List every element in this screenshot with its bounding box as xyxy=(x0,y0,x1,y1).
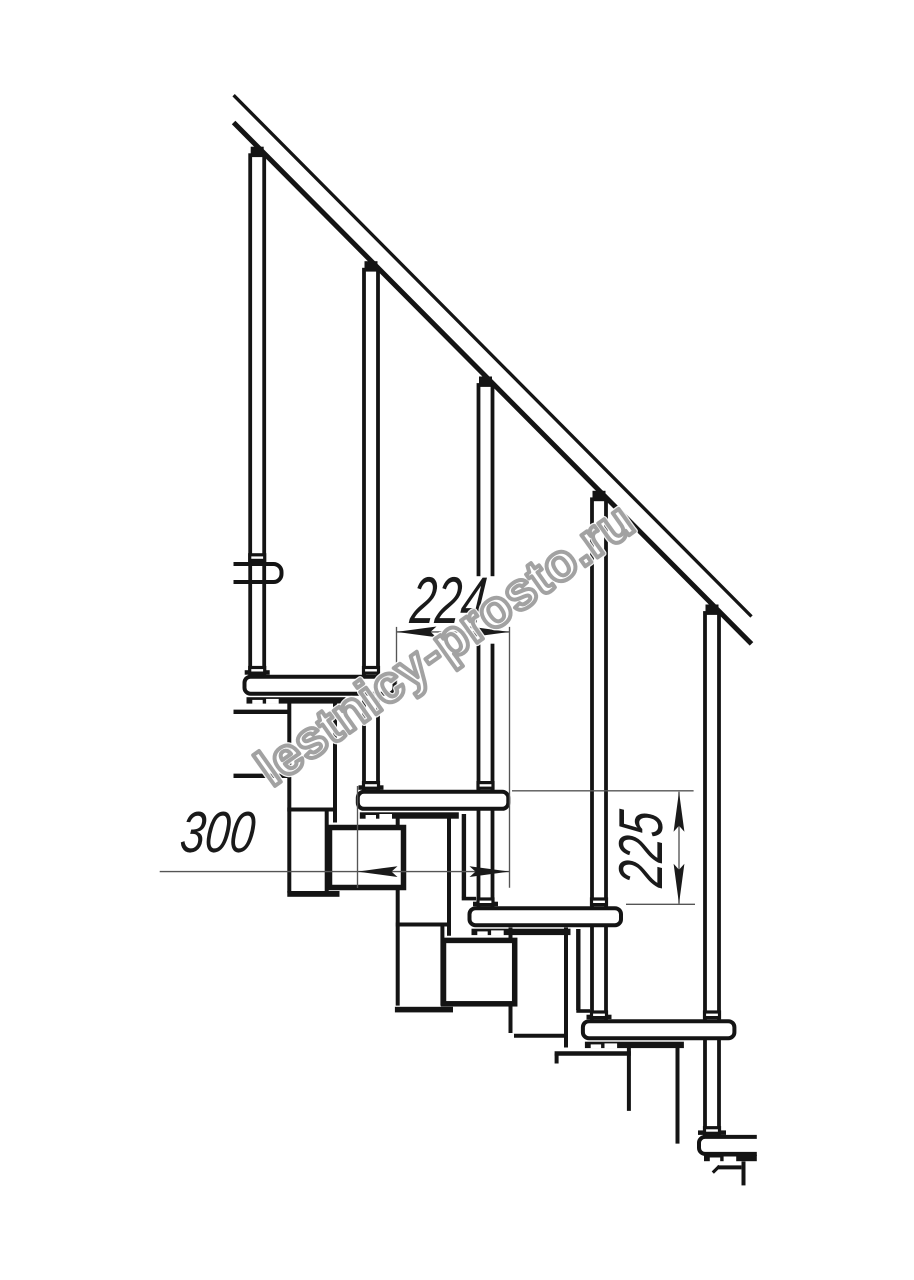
svg-text:300: 300 xyxy=(177,800,258,865)
svg-text:lestnicy-prosto.ru: lestnicy-prosto.ru xyxy=(245,491,644,797)
svg-text:225: 225 xyxy=(607,807,676,890)
